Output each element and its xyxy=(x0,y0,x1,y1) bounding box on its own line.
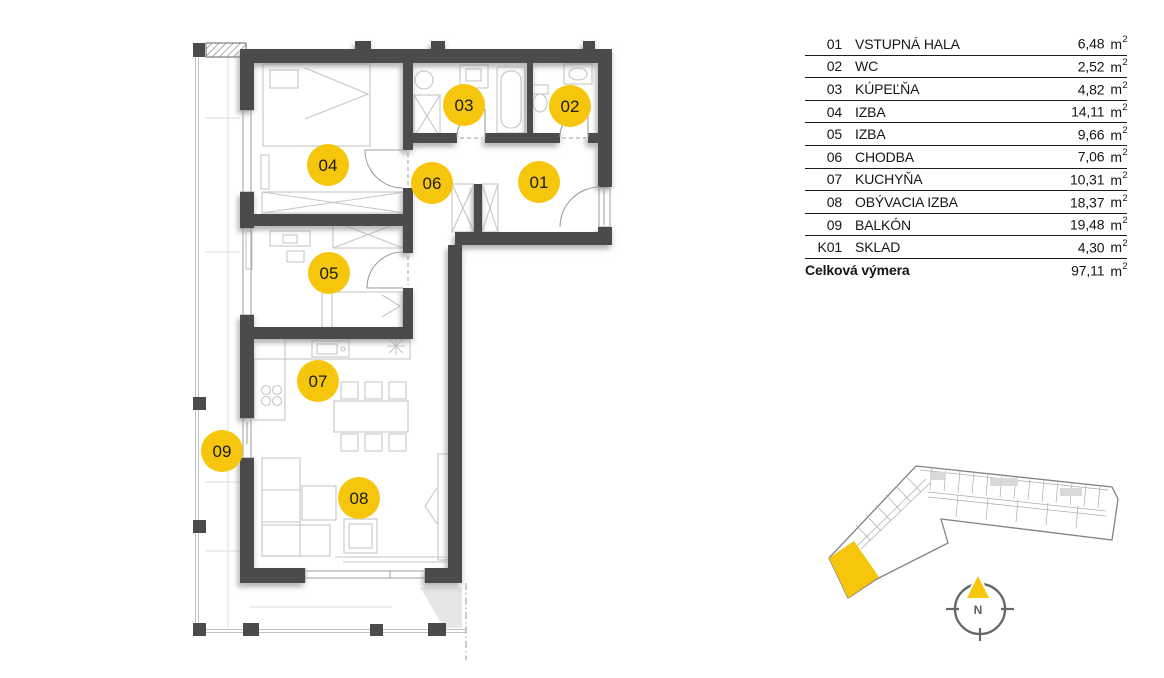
svg-text:02: 02 xyxy=(561,97,580,116)
room-name: KÚPEĽŇA xyxy=(855,81,1078,97)
room-label-07: 07 xyxy=(297,360,339,402)
wardrobe-room04 xyxy=(262,192,405,213)
stove-burners xyxy=(262,386,282,406)
room-name: OBÝVACIA IZBA xyxy=(855,194,1070,210)
room-area: 2,52m2 xyxy=(1078,58,1127,75)
room-area: 6,48m2 xyxy=(1078,35,1127,52)
north-arrow-icon xyxy=(967,576,989,598)
washbasin-room03 xyxy=(415,71,433,89)
room-legend-table: 01 VSTUPNÁ HALA 6,48m2 02 WC 2,52m2 03 K… xyxy=(805,33,1127,282)
room-code: 08 xyxy=(805,194,855,210)
total-label: Celková výmera xyxy=(805,262,910,278)
room-name: IZBA xyxy=(855,104,1071,120)
legend-row: 07 KUCHYŇA 10,31m2 xyxy=(805,169,1127,192)
entrance-door-swing xyxy=(560,187,600,227)
living-room-window xyxy=(305,568,425,583)
legend-row: 06 CHODBA 7,06m2 xyxy=(805,146,1127,169)
room-label-03: 03 xyxy=(443,84,485,126)
svg-text:08: 08 xyxy=(350,489,369,508)
svg-text:05: 05 xyxy=(320,264,339,283)
room-code: 02 xyxy=(805,58,855,74)
room-label-08: 08 xyxy=(338,477,380,519)
legend-row: 08 OBÝVACIA IZBA 18,37m2 xyxy=(805,191,1127,214)
armchair xyxy=(344,519,377,553)
room-label-09: 09 xyxy=(201,430,243,472)
room-code: 01 xyxy=(805,36,855,52)
room-name: CHODBA xyxy=(855,149,1078,165)
room-name: VSTUPNÁ HALA xyxy=(855,36,1078,52)
bed-room05 xyxy=(322,292,403,328)
svg-text:03: 03 xyxy=(455,96,474,115)
window-room04 xyxy=(240,110,254,192)
room-area: 18,37m2 xyxy=(1070,194,1127,211)
room-area: 14,11m2 xyxy=(1071,103,1127,120)
room-name: BALKÓN xyxy=(855,217,1070,233)
room-code: 07 xyxy=(805,171,855,187)
legend-row: 05 IZBA 9,66m2 xyxy=(805,123,1127,146)
toilet-room02 xyxy=(532,85,548,112)
room-name: SKLAD xyxy=(855,239,1078,255)
room-label-02: 02 xyxy=(549,85,591,127)
room-area: 9,66m2 xyxy=(1078,126,1127,143)
bathtub-room03 xyxy=(497,67,525,133)
svg-text:09: 09 xyxy=(213,442,232,461)
legend-row: 03 KÚPEĽŇA 4,82m2 xyxy=(805,78,1127,101)
room-label-06: 06 xyxy=(411,162,453,204)
room-labels: 01 02 03 04 05 06 07 08 09 xyxy=(201,84,591,519)
coffee-table xyxy=(302,486,336,520)
room-area: 4,82m2 xyxy=(1078,81,1127,98)
room-code: 03 xyxy=(805,81,855,97)
room-name: IZBA xyxy=(855,126,1078,142)
bed-room04 xyxy=(263,64,370,146)
svg-text:06: 06 xyxy=(423,174,442,193)
room-area: 19,48m2 xyxy=(1070,216,1127,233)
compass: N xyxy=(946,576,1014,641)
room-label-04: 04 xyxy=(307,144,349,186)
sink-room02 xyxy=(564,64,592,84)
svg-text:01: 01 xyxy=(530,173,549,192)
room-label-05: 05 xyxy=(308,252,350,294)
walls-layer xyxy=(240,41,612,583)
legend-row: 02 WC 2,52m2 xyxy=(805,56,1127,79)
radiator-room04 xyxy=(261,155,269,189)
tv-unit xyxy=(425,454,449,560)
legend-total-row: Celková výmera 97,11m2 xyxy=(805,259,1127,282)
door-room04 xyxy=(365,150,403,188)
legend-row: 01 VSTUPNÁ HALA 6,48m2 xyxy=(805,33,1127,56)
svg-text:07: 07 xyxy=(309,372,328,391)
sofa xyxy=(262,458,330,556)
dining-table xyxy=(334,382,408,451)
building-minimap xyxy=(829,466,1118,598)
total-area: 97,11m2 xyxy=(1071,262,1127,279)
room-code: K01 xyxy=(805,239,855,255)
apartment-plan-page: 01 02 03 04 05 06 07 08 09 xyxy=(0,0,1164,678)
legend-row: 09 BALKÓN 19,48m2 xyxy=(805,214,1127,237)
legend-row: 04 IZBA 14,11m2 xyxy=(805,101,1127,124)
room-name: KUCHYŇA xyxy=(855,171,1070,187)
extractor-icon xyxy=(387,337,405,355)
desk-room05 xyxy=(270,231,310,262)
room-code: 09 xyxy=(805,217,855,233)
svg-text:04: 04 xyxy=(319,156,338,175)
legend-row: K01 SKLAD 4,30m2 xyxy=(805,236,1127,259)
room-code: 05 xyxy=(805,126,855,142)
room-code: 04 xyxy=(805,104,855,120)
room-area: 7,06m2 xyxy=(1078,148,1127,165)
room-name: WC xyxy=(855,58,1078,74)
room-code: 06 xyxy=(805,149,855,165)
room-area: 10,31m2 xyxy=(1070,171,1127,188)
room-label-01: 01 xyxy=(518,161,560,203)
shower-room03 xyxy=(414,95,440,137)
room-area: 4,30m2 xyxy=(1078,239,1127,256)
door-room05 xyxy=(367,252,403,288)
north-label: N xyxy=(974,603,983,617)
